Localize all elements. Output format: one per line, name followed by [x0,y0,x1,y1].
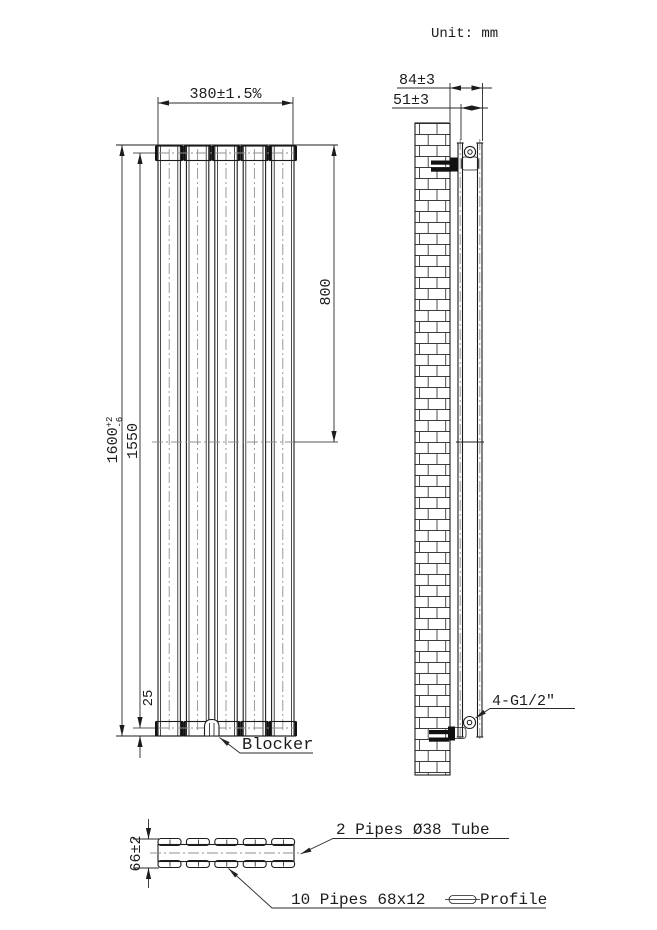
blocker-label: Blocker [242,736,313,755]
dim-84-text: 84±3 [399,72,435,89]
anchor-bolt [431,161,451,165]
dim-25-text: 25 [141,690,157,707]
pipes-label: 10 Pipes 68x12 [291,891,425,909]
blocker-plug [205,720,220,737]
dim-800-text: 800 [318,278,335,305]
unit-label: Unit: mm [431,26,498,42]
dim-66-text: 66±2 [128,835,145,871]
connection-label: 4-G1/2" [492,693,555,710]
anchor-bolt [431,168,451,172]
dim-width-text: 380±1.5% [189,86,262,103]
dim-51-text: 51±3 [393,92,429,109]
radiator-technical-drawing: Unit: mm [0,0,657,930]
anchor-bolt [429,730,449,734]
profile-label: Profile [480,891,547,909]
drawing-background [0,0,657,930]
tube-label: 2 Pipes Ø38 Tube [336,821,490,839]
dim-height-inner-text: 1550 [125,423,142,459]
wall [415,123,450,775]
anchor-bolt [429,738,449,742]
